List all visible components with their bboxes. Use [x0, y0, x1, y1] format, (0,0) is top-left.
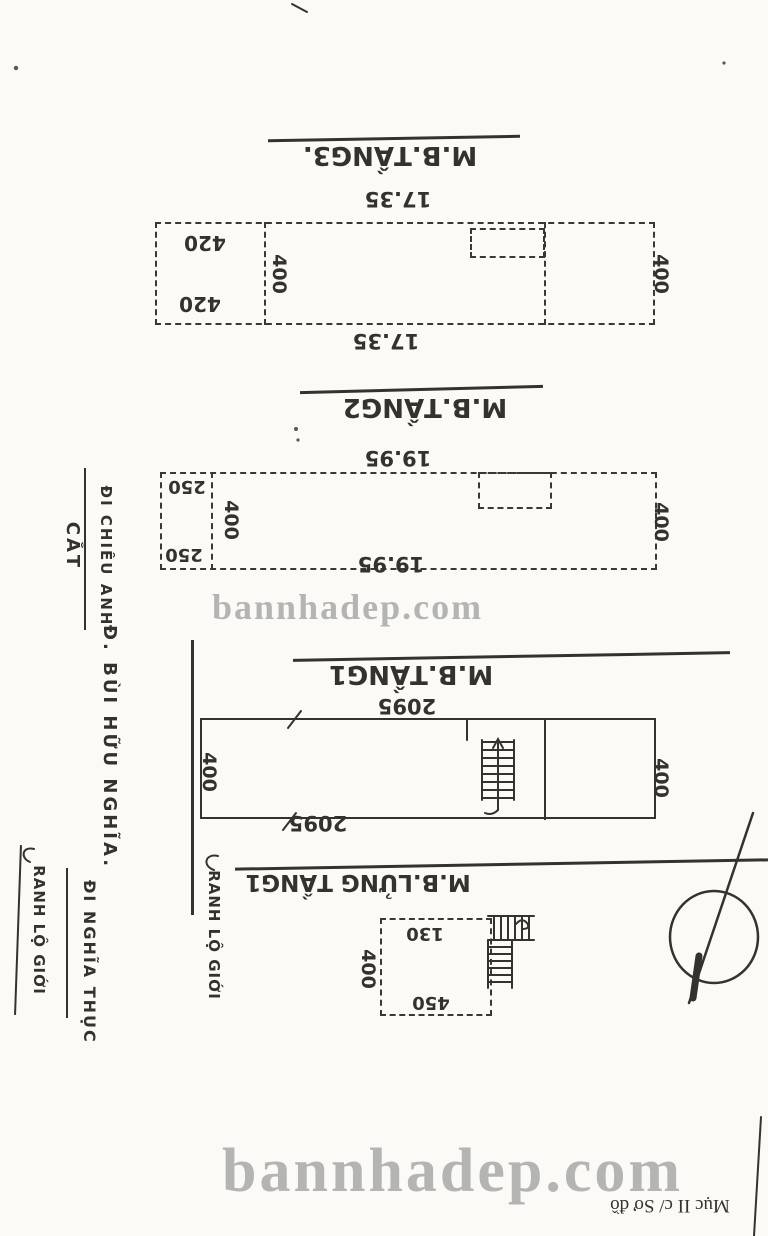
scan-speck	[14, 66, 18, 70]
drawing-overlay	[0, 0, 768, 1236]
tang1-stair-hatch	[467, 720, 514, 814]
lung-stair-hatch	[488, 916, 534, 988]
scan-speck	[296, 438, 299, 441]
tang1-tick-top	[288, 711, 301, 728]
watermark-large: bannhadep.com	[222, 1136, 683, 1207]
tang1-tick-bottom	[283, 813, 296, 830]
boundary-mid-curl	[206, 856, 218, 870]
scan-speck	[292, 4, 307, 12]
page-edge-line	[754, 1117, 761, 1236]
boundary-left-curl	[24, 849, 34, 862]
north-arrow	[670, 813, 758, 1003]
scanned-floor-plan-page: M.B.TẦNG3. 17.35 420 420 400 400 17.35 M…	[0, 0, 768, 1236]
scan-speck	[294, 427, 298, 431]
scan-speck	[722, 61, 725, 64]
